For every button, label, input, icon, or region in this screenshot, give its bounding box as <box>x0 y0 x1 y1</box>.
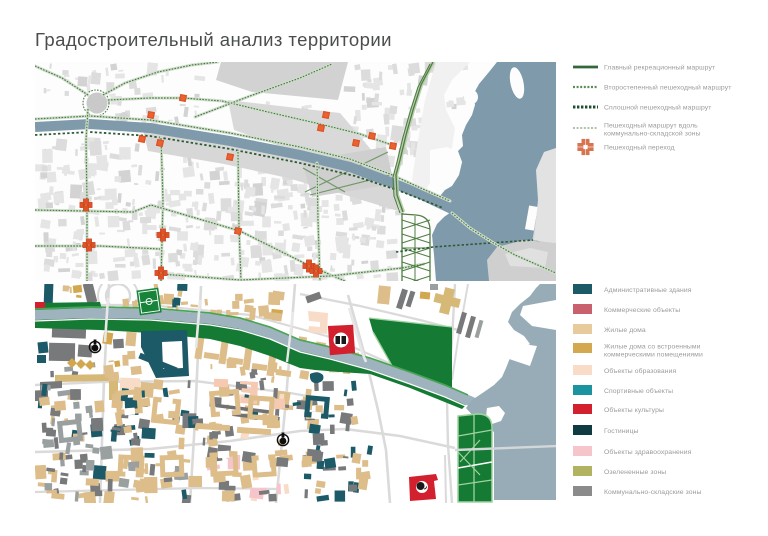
svg-text:Административные здания: Административные здания <box>604 287 692 294</box>
svg-text:Гостиницы: Гостиницы <box>604 428 639 435</box>
svg-text:Сплошной пешеходный маршрут: Сплошной пешеходный маршрут <box>604 104 711 112</box>
svg-text:Спортивные объекты: Спортивные объекты <box>604 387 673 395</box>
svg-text:Главный рекреационный маршрут: Главный рекреационный маршрут <box>604 64 715 72</box>
svg-text:Градостроительный анализ терри: Градостроительный анализ территории <box>35 29 392 50</box>
svg-text:Второстепенный пешеходный марш: Второстепенный пешеходный маршрут <box>604 84 731 92</box>
svg-text:Объекты культуры: Объекты культуры <box>604 406 664 414</box>
svg-text:Коммунально-складские зоны: Коммунально-складские зоны <box>604 489 701 496</box>
svg-text:Жилые дома: Жилые дома <box>604 327 646 334</box>
svg-text:Объекты здравоохранения: Объекты здравоохранения <box>604 448 692 456</box>
svg-text:коммунально-складской зоны: коммунально-складской зоны <box>604 130 701 138</box>
svg-text:Пешеходный маршрут вдоль: Пешеходный маршрут вдоль <box>604 122 698 130</box>
svg-text:Объекты образования: Объекты образования <box>604 367 677 375</box>
svg-text:Пешеходный переход: Пешеходный переход <box>604 144 675 152</box>
svg-text:коммерческими помещениями: коммерческими помещениями <box>604 352 703 359</box>
svg-text:Жилые дома со встроенными: Жилые дома со встроенными <box>604 344 701 351</box>
svg-text:Коммерческие объекты: Коммерческие объекты <box>604 306 680 314</box>
svg-text:Озелененные зоны: Озелененные зоны <box>604 469 666 476</box>
